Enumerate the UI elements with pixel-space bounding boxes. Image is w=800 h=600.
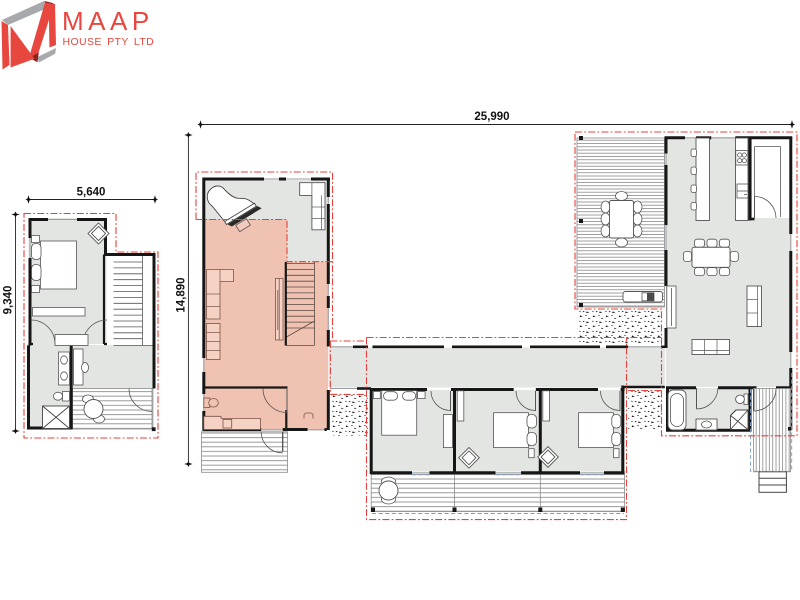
svg-text:9,340: 9,340 bbox=[3, 286, 15, 315]
svg-text:14,890: 14,890 bbox=[176, 277, 188, 312]
svg-text:5,640: 5,640 bbox=[77, 187, 106, 199]
svg-text:HOUSE PTY LTD: HOUSE PTY LTD bbox=[63, 36, 155, 48]
svg-text:MAAP: MAAP bbox=[62, 6, 154, 36]
svg-text:25,990: 25,990 bbox=[474, 111, 509, 123]
